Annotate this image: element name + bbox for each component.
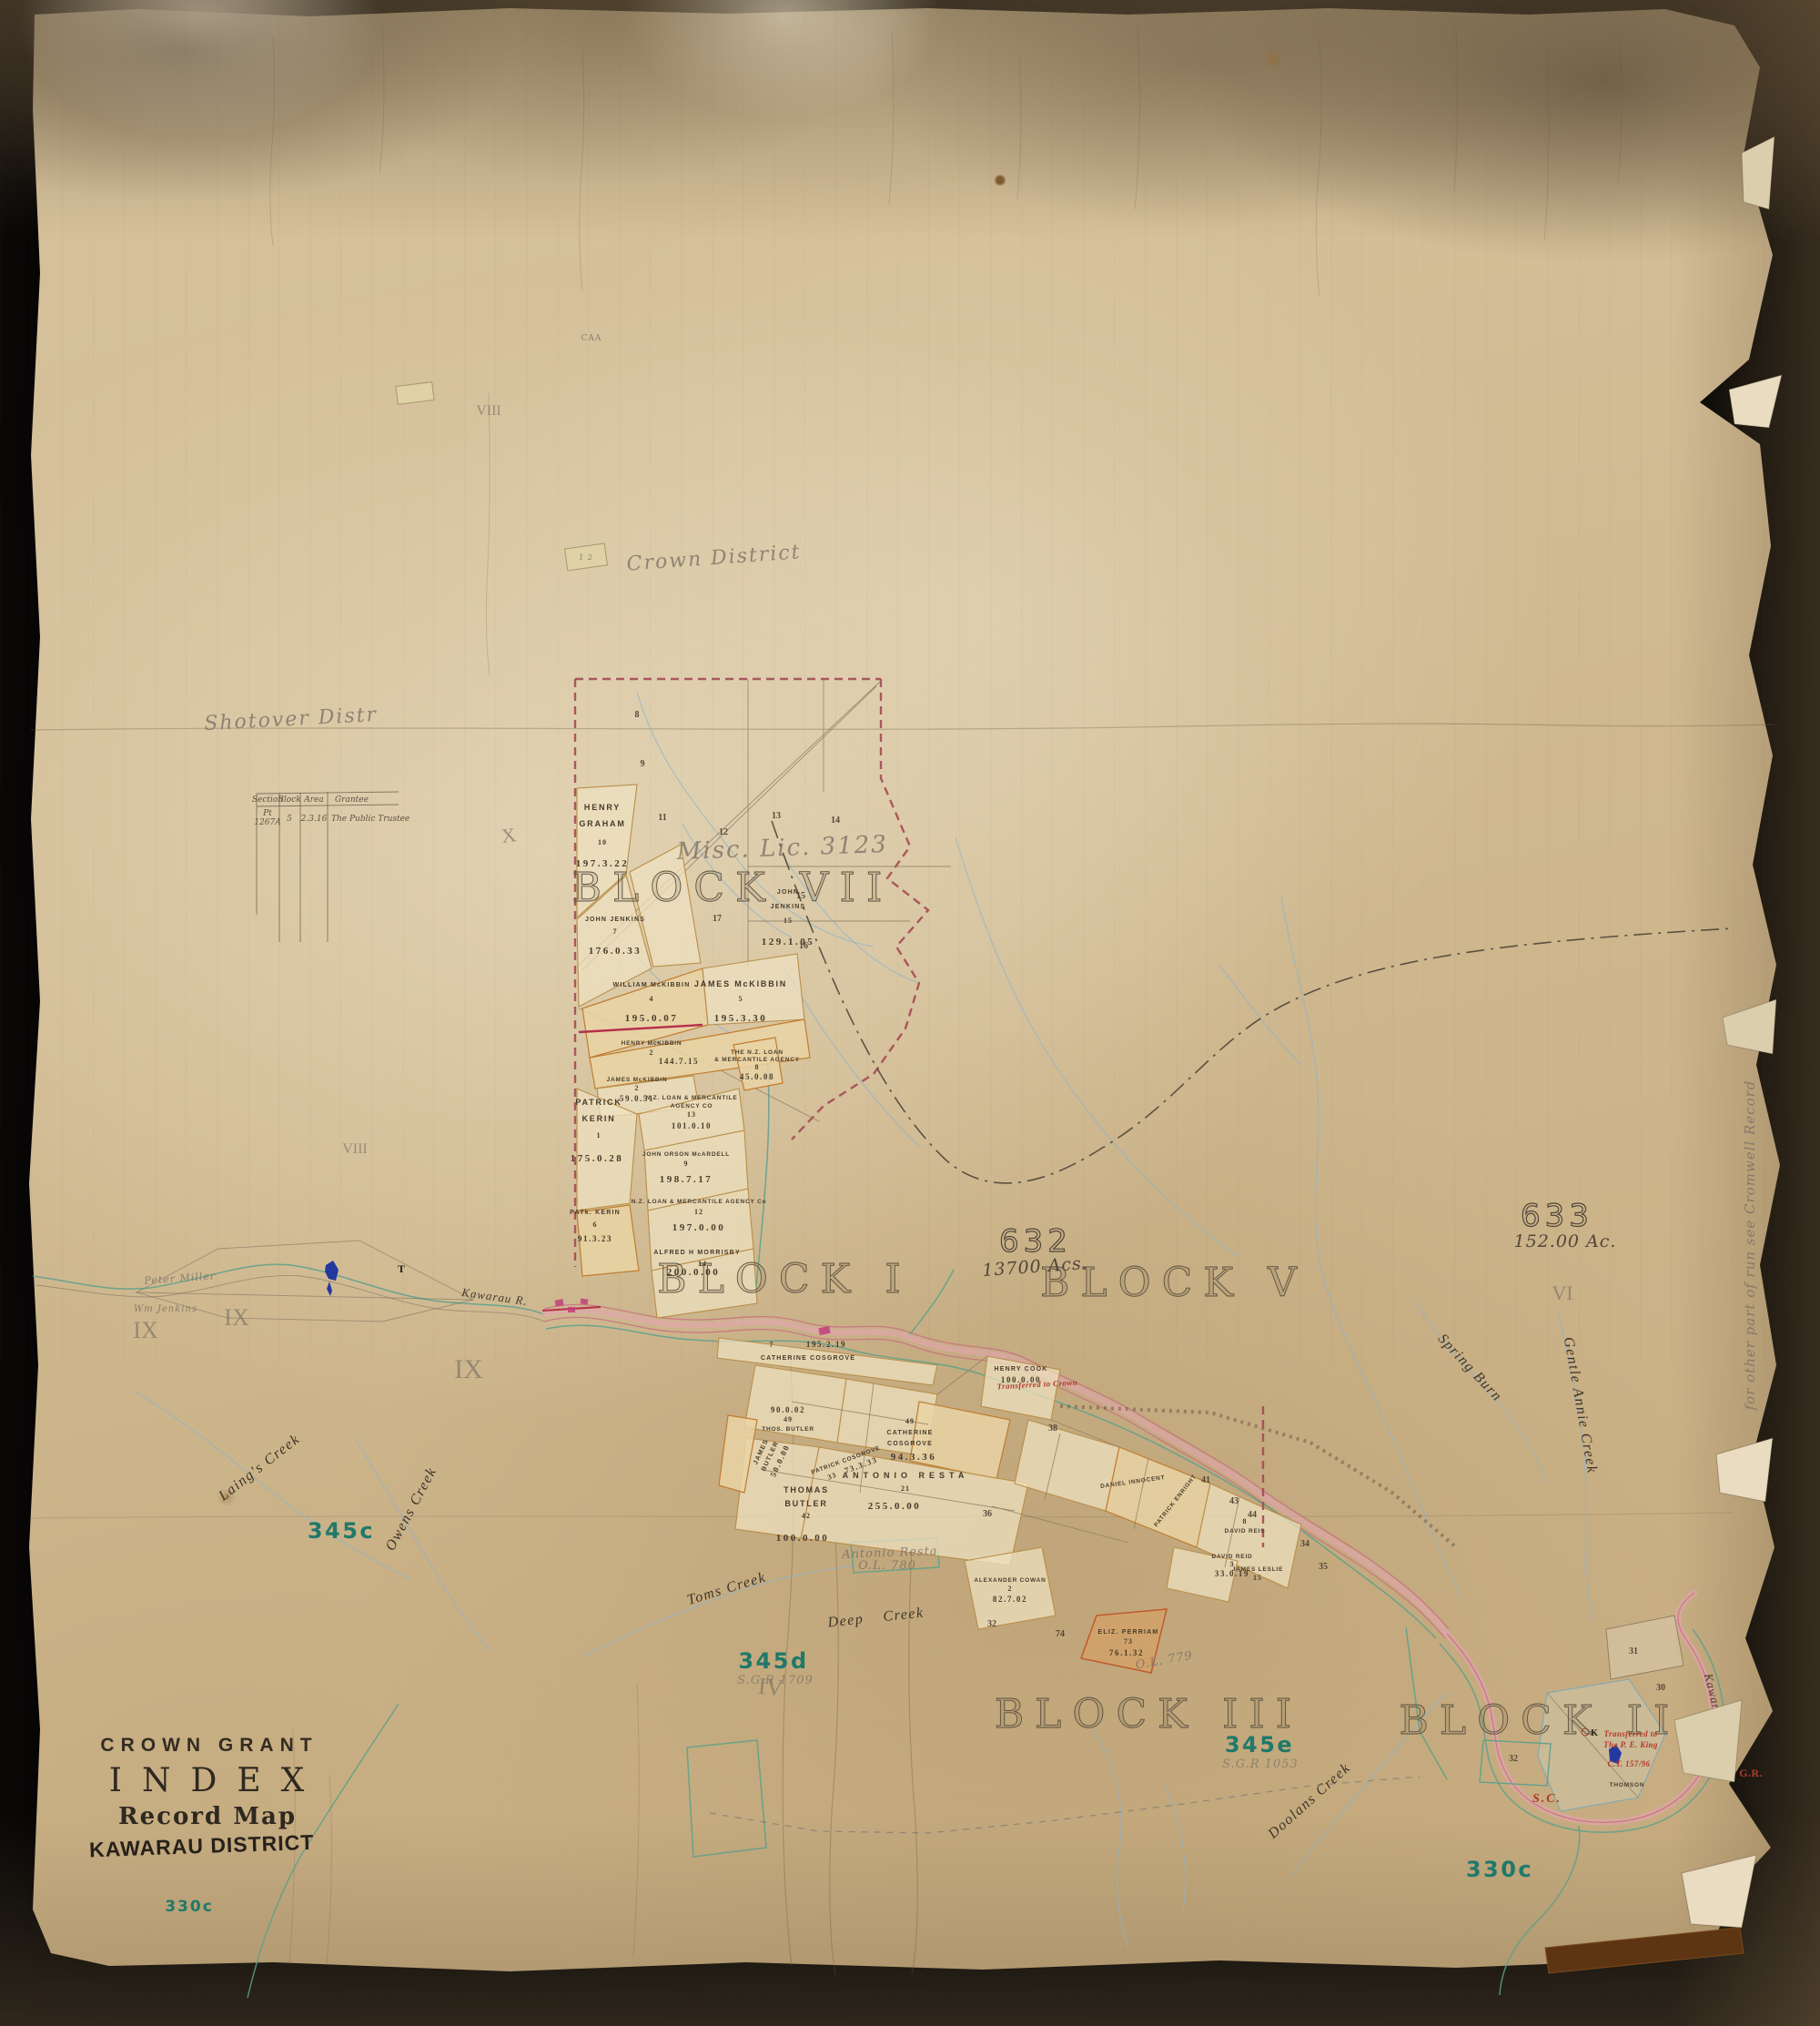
- title-kawarau-district: KAWARAU DISTRICT: [89, 1830, 315, 1862]
- owens-creek-label: Owens Creek: [383, 1464, 440, 1554]
- section-number: 41: [1201, 1475, 1210, 1485]
- roman-vi: VI: [1552, 1281, 1572, 1304]
- sc-note: S.C.: [1532, 1792, 1562, 1806]
- section-number: 43: [1229, 1496, 1239, 1506]
- table-row-section: 1267A: [254, 818, 281, 827]
- section-number: 15: [796, 891, 805, 901]
- laings-creek-label: Laing's Creek: [216, 1431, 303, 1504]
- title-index: INDEX: [109, 1762, 325, 1799]
- scanned-map-screenshot: { "title_block": { "line1": "CROWN GRANT…: [0, 0, 1820, 2026]
- table-row-grantee: The Public Trustee: [331, 815, 409, 824]
- section-number: 31: [1629, 1646, 1638, 1656]
- roman-ix-b: IX: [224, 1304, 249, 1331]
- section-number: 16: [799, 941, 808, 951]
- block-iii-title: BLOCK III: [995, 1691, 1302, 1737]
- caa-mark: CAA: [581, 334, 602, 343]
- section-number: 32: [987, 1619, 996, 1629]
- section-number: 38: [1048, 1423, 1057, 1433]
- crown-district-note: Crown District: [626, 541, 802, 575]
- index-table: Section Block Area Grantee Pt 1267A 5 2.…: [252, 792, 409, 942]
- section-number: 8: [635, 710, 640, 720]
- lease-330c-right: 330c: [1466, 1857, 1533, 1882]
- transfer-king-line1: Transferred to: [1603, 1729, 1657, 1738]
- wm-jenkins-note: Wm Jenkins: [134, 1304, 197, 1314]
- deep-creek-label: Deep Creek: [826, 1606, 925, 1631]
- table-header-grantee: Grantee: [335, 795, 369, 805]
- thomson-stamp: THOMSON: [1610, 1782, 1645, 1788]
- lease-345d: 345d: [738, 1648, 808, 1674]
- section-number: 11: [658, 813, 666, 823]
- run-632: 632: [999, 1223, 1072, 1260]
- run-boundary-lines: [136, 821, 1734, 1322]
- misc-lic-note: Misc. Lic. 3123: [675, 831, 888, 866]
- table-header-block: Block: [277, 795, 300, 805]
- map-drawing-layer: BLOCK VII BLOCK I BLOCK V BLOCK III BLOC…: [0, 0, 1820, 2026]
- section-number: 17: [713, 914, 722, 924]
- run-633: 633: [1521, 1198, 1593, 1234]
- map-roller-bar: [1545, 1928, 1744, 1973]
- t-mark: T: [398, 1262, 405, 1275]
- section-number: 34: [1300, 1539, 1309, 1549]
- cromwell-margin-note: for other part of run see Cromwell Recor…: [1742, 1080, 1758, 1412]
- transfer-king-line3: C.T. 157/96: [1608, 1759, 1651, 1768]
- section-number: 32: [1509, 1754, 1518, 1764]
- roman-ix-a: IX: [133, 1317, 158, 1343]
- toms-creek-label: Toms Creek: [685, 1569, 768, 1608]
- section-number: 14: [831, 815, 840, 826]
- gentle-annie-creek-label: Gentle Annie Creek: [1561, 1336, 1600, 1475]
- ol780-note: O.L. 780: [858, 1559, 916, 1573]
- roman-x: X: [500, 823, 517, 847]
- shotover-district-note: Shotover Distr: [204, 704, 379, 735]
- lease-345e: 345e: [1225, 1732, 1294, 1758]
- section-number: 9: [641, 759, 645, 769]
- lease-330c-left: 330c: [165, 1898, 214, 1916]
- paper-creases: [31, 27, 1774, 1975]
- section-number: 74: [1056, 1629, 1065, 1639]
- table-row-block: 5: [287, 815, 292, 824]
- roman-ix-c: IX: [454, 1354, 483, 1384]
- section-number: 35: [1319, 1562, 1328, 1572]
- lease-number-labels: 345c 345d S.G.R 1709 345e S.G.R 1053 330…: [165, 1518, 1533, 1916]
- roman-iv: IV: [757, 1673, 785, 1702]
- lease-345e-sgr-note: S.G.R 1053: [1222, 1758, 1299, 1771]
- block-vii-survey: [542, 679, 951, 1318]
- block-vii-title: BLOCK VII: [572, 865, 894, 911]
- run-633-area: 152.00 Ac.: [1514, 1231, 1617, 1251]
- section-number: 30: [1656, 1683, 1665, 1693]
- spring-burn-label: Spring Burn: [1435, 1331, 1505, 1404]
- title-record-map: Record Map: [118, 1803, 297, 1830]
- peter-miller-note: Peter Miller: [143, 1270, 216, 1287]
- section-number: 13: [772, 811, 781, 821]
- transfer-king-line2: The P. E. King: [1603, 1740, 1658, 1749]
- section-number: 44: [1248, 1510, 1257, 1520]
- red-ink-notes: Transferred to Crown Transferred to The …: [996, 1378, 1763, 1806]
- block-i-title: BLOCK I: [657, 1256, 912, 1302]
- sticker-text: 1 2: [579, 553, 593, 562]
- section-number: 36: [983, 1509, 992, 1519]
- roman-viii-b: VIII: [342, 1141, 368, 1157]
- table-header-area: Area: [303, 795, 324, 805]
- doolans-creek-label: Doolans Creek: [1265, 1760, 1354, 1842]
- parcel-henry-cook: HENRY COOK100.0.00: [994, 1366, 1047, 1384]
- roman-viii-a: VIII: [476, 403, 501, 419]
- lease-345c: 345c: [308, 1518, 375, 1544]
- map-title-block: CROWN GRANT INDEX Record Map KAWARAU DIS…: [89, 1735, 325, 1861]
- title-crown-grant: CROWN GRANT: [100, 1735, 318, 1756]
- section-number: 12: [719, 827, 728, 837]
- table-row-area: 2.3.16: [300, 815, 328, 824]
- k-mark: K: [1591, 1728, 1598, 1738]
- table-row-section-pt: Pt: [262, 809, 272, 818]
